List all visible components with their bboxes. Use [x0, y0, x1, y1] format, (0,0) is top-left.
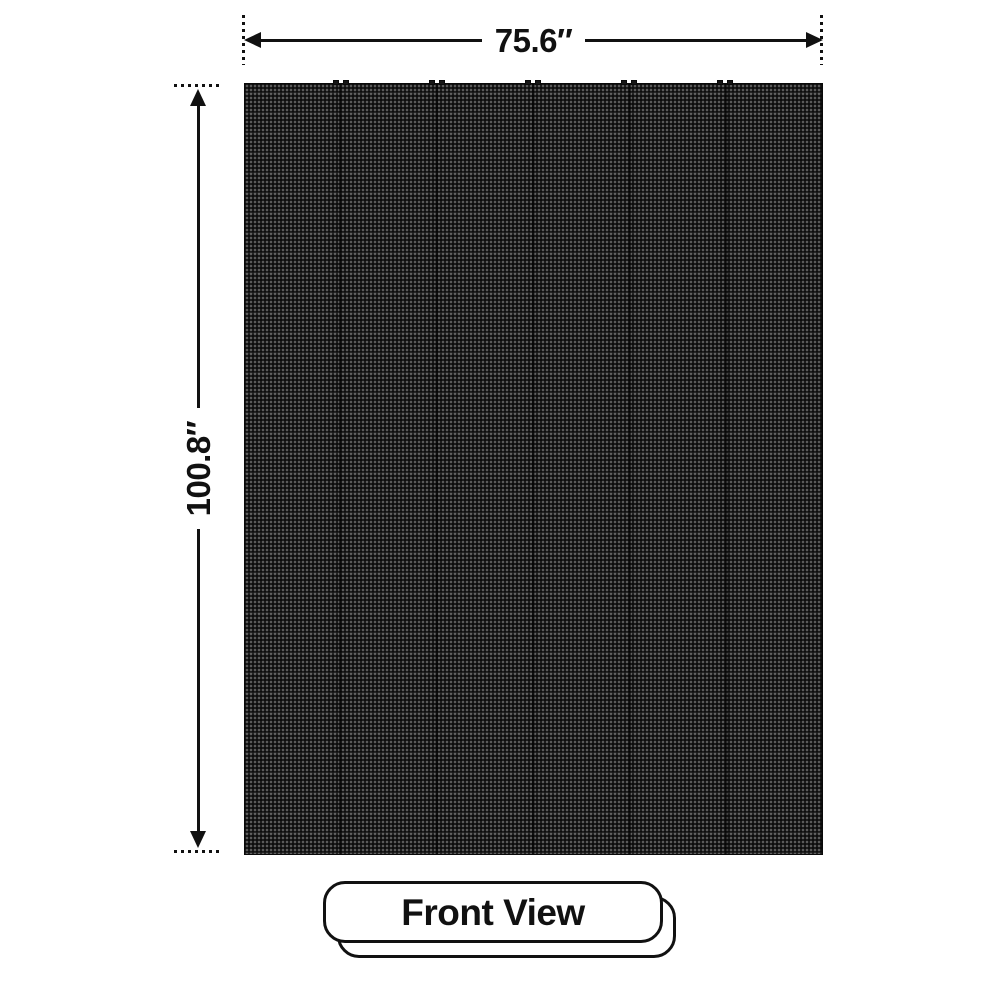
width-dimension-label: 75.6″: [495, 24, 573, 57]
panel-mount-tab: [535, 80, 541, 85]
panel-mount-tab: [621, 80, 627, 85]
panel-mount-tab: [429, 80, 435, 85]
panel-mount-tab: [525, 80, 531, 85]
height-dimension-label: 100.8″: [182, 421, 215, 516]
extension-line-top-right: [820, 15, 823, 65]
led-panel-front: [244, 83, 823, 855]
panel-mount-tab: [333, 80, 339, 85]
panel-mount-tab: [439, 80, 445, 85]
panel-mount-tab: [717, 80, 723, 85]
front-view-card: Front View: [323, 881, 663, 943]
extension-line-left-top: [174, 84, 223, 87]
panel-mount-tab: [727, 80, 733, 85]
height-dimension-line-bottom: [197, 529, 200, 831]
panel-mount-tab: [631, 80, 637, 85]
width-dimension: 75.6″: [244, 17, 823, 63]
panel-mount-tab: [343, 80, 349, 85]
arrow-up-icon: [190, 89, 206, 106]
height-dimension-line-top: [197, 106, 200, 408]
front-view-label: Front View: [401, 894, 584, 931]
diagram-canvas: 75.6″ 100.8″ Front View: [0, 0, 1000, 1000]
arrow-left-icon: [244, 32, 261, 48]
extension-line-left-bottom: [174, 850, 223, 853]
height-dimension: 100.8″: [175, 89, 221, 848]
width-dimension-line-left: [261, 39, 482, 42]
arrow-down-icon: [190, 831, 206, 848]
extension-line-top-left: [242, 15, 245, 65]
width-dimension-line-right: [585, 39, 806, 42]
